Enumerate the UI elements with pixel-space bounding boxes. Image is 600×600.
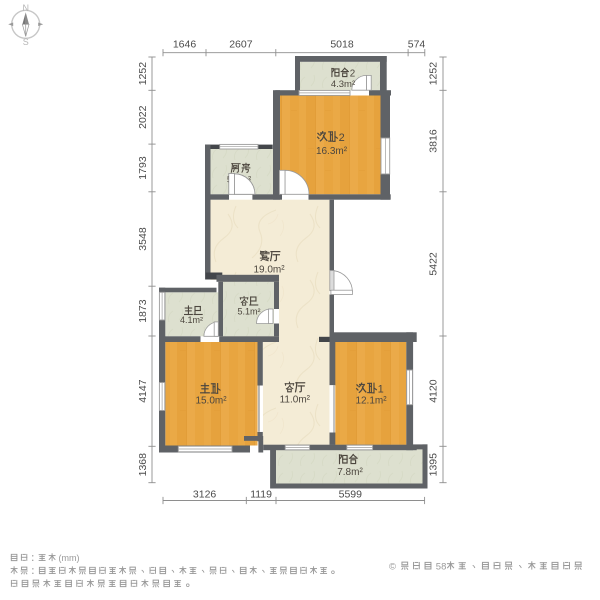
svg-text:1395: 1395	[428, 453, 440, 477]
svg-text:5018: 5018	[330, 39, 354, 51]
svg-text:1368: 1368	[137, 453, 149, 477]
svg-text:4.3m²: 4.3m²	[331, 79, 355, 90]
svg-text:1252: 1252	[137, 62, 149, 86]
svg-text:7.8m²: 7.8m²	[337, 467, 363, 478]
svg-text:5.1m²: 5.1m²	[237, 307, 260, 317]
svg-text:3126: 3126	[193, 489, 217, 501]
svg-text:(mm): (mm)	[59, 553, 80, 563]
svg-text:：: ：	[31, 566, 40, 576]
svg-text:2: 2	[339, 132, 345, 144]
svg-text:1793: 1793	[137, 156, 149, 180]
svg-text:N: N	[22, 3, 29, 13]
svg-text:4120: 4120	[428, 379, 440, 403]
svg-text:12.1m²: 12.1m²	[355, 396, 387, 407]
svg-text:15.0m²: 15.0m²	[195, 396, 227, 407]
svg-text:S: S	[23, 37, 29, 47]
svg-text:1: 1	[378, 383, 384, 395]
svg-text:：: ：	[31, 553, 40, 563]
svg-text:1252: 1252	[428, 62, 440, 86]
svg-text:2607: 2607	[229, 39, 253, 51]
svg-text:3816: 3816	[428, 129, 440, 153]
svg-text:2022: 2022	[137, 105, 149, 129]
svg-text:©: ©	[389, 562, 396, 573]
svg-text:5599: 5599	[339, 489, 363, 501]
svg-text:2: 2	[350, 68, 355, 79]
svg-text:574: 574	[408, 39, 426, 51]
svg-text:58: 58	[436, 562, 447, 573]
svg-text:5422: 5422	[428, 252, 440, 276]
svg-text:1873: 1873	[137, 299, 149, 323]
svg-text:3548: 3548	[137, 227, 149, 251]
svg-text:4147: 4147	[137, 379, 149, 403]
svg-text:16.3m²: 16.3m²	[316, 146, 348, 157]
svg-text:1119: 1119	[250, 489, 272, 501]
svg-text:19.0m²: 19.0m²	[253, 264, 285, 275]
svg-text:11.0m²: 11.0m²	[280, 395, 311, 406]
svg-text:4.1m²: 4.1m²	[180, 315, 203, 325]
svg-text:1646: 1646	[173, 39, 197, 51]
